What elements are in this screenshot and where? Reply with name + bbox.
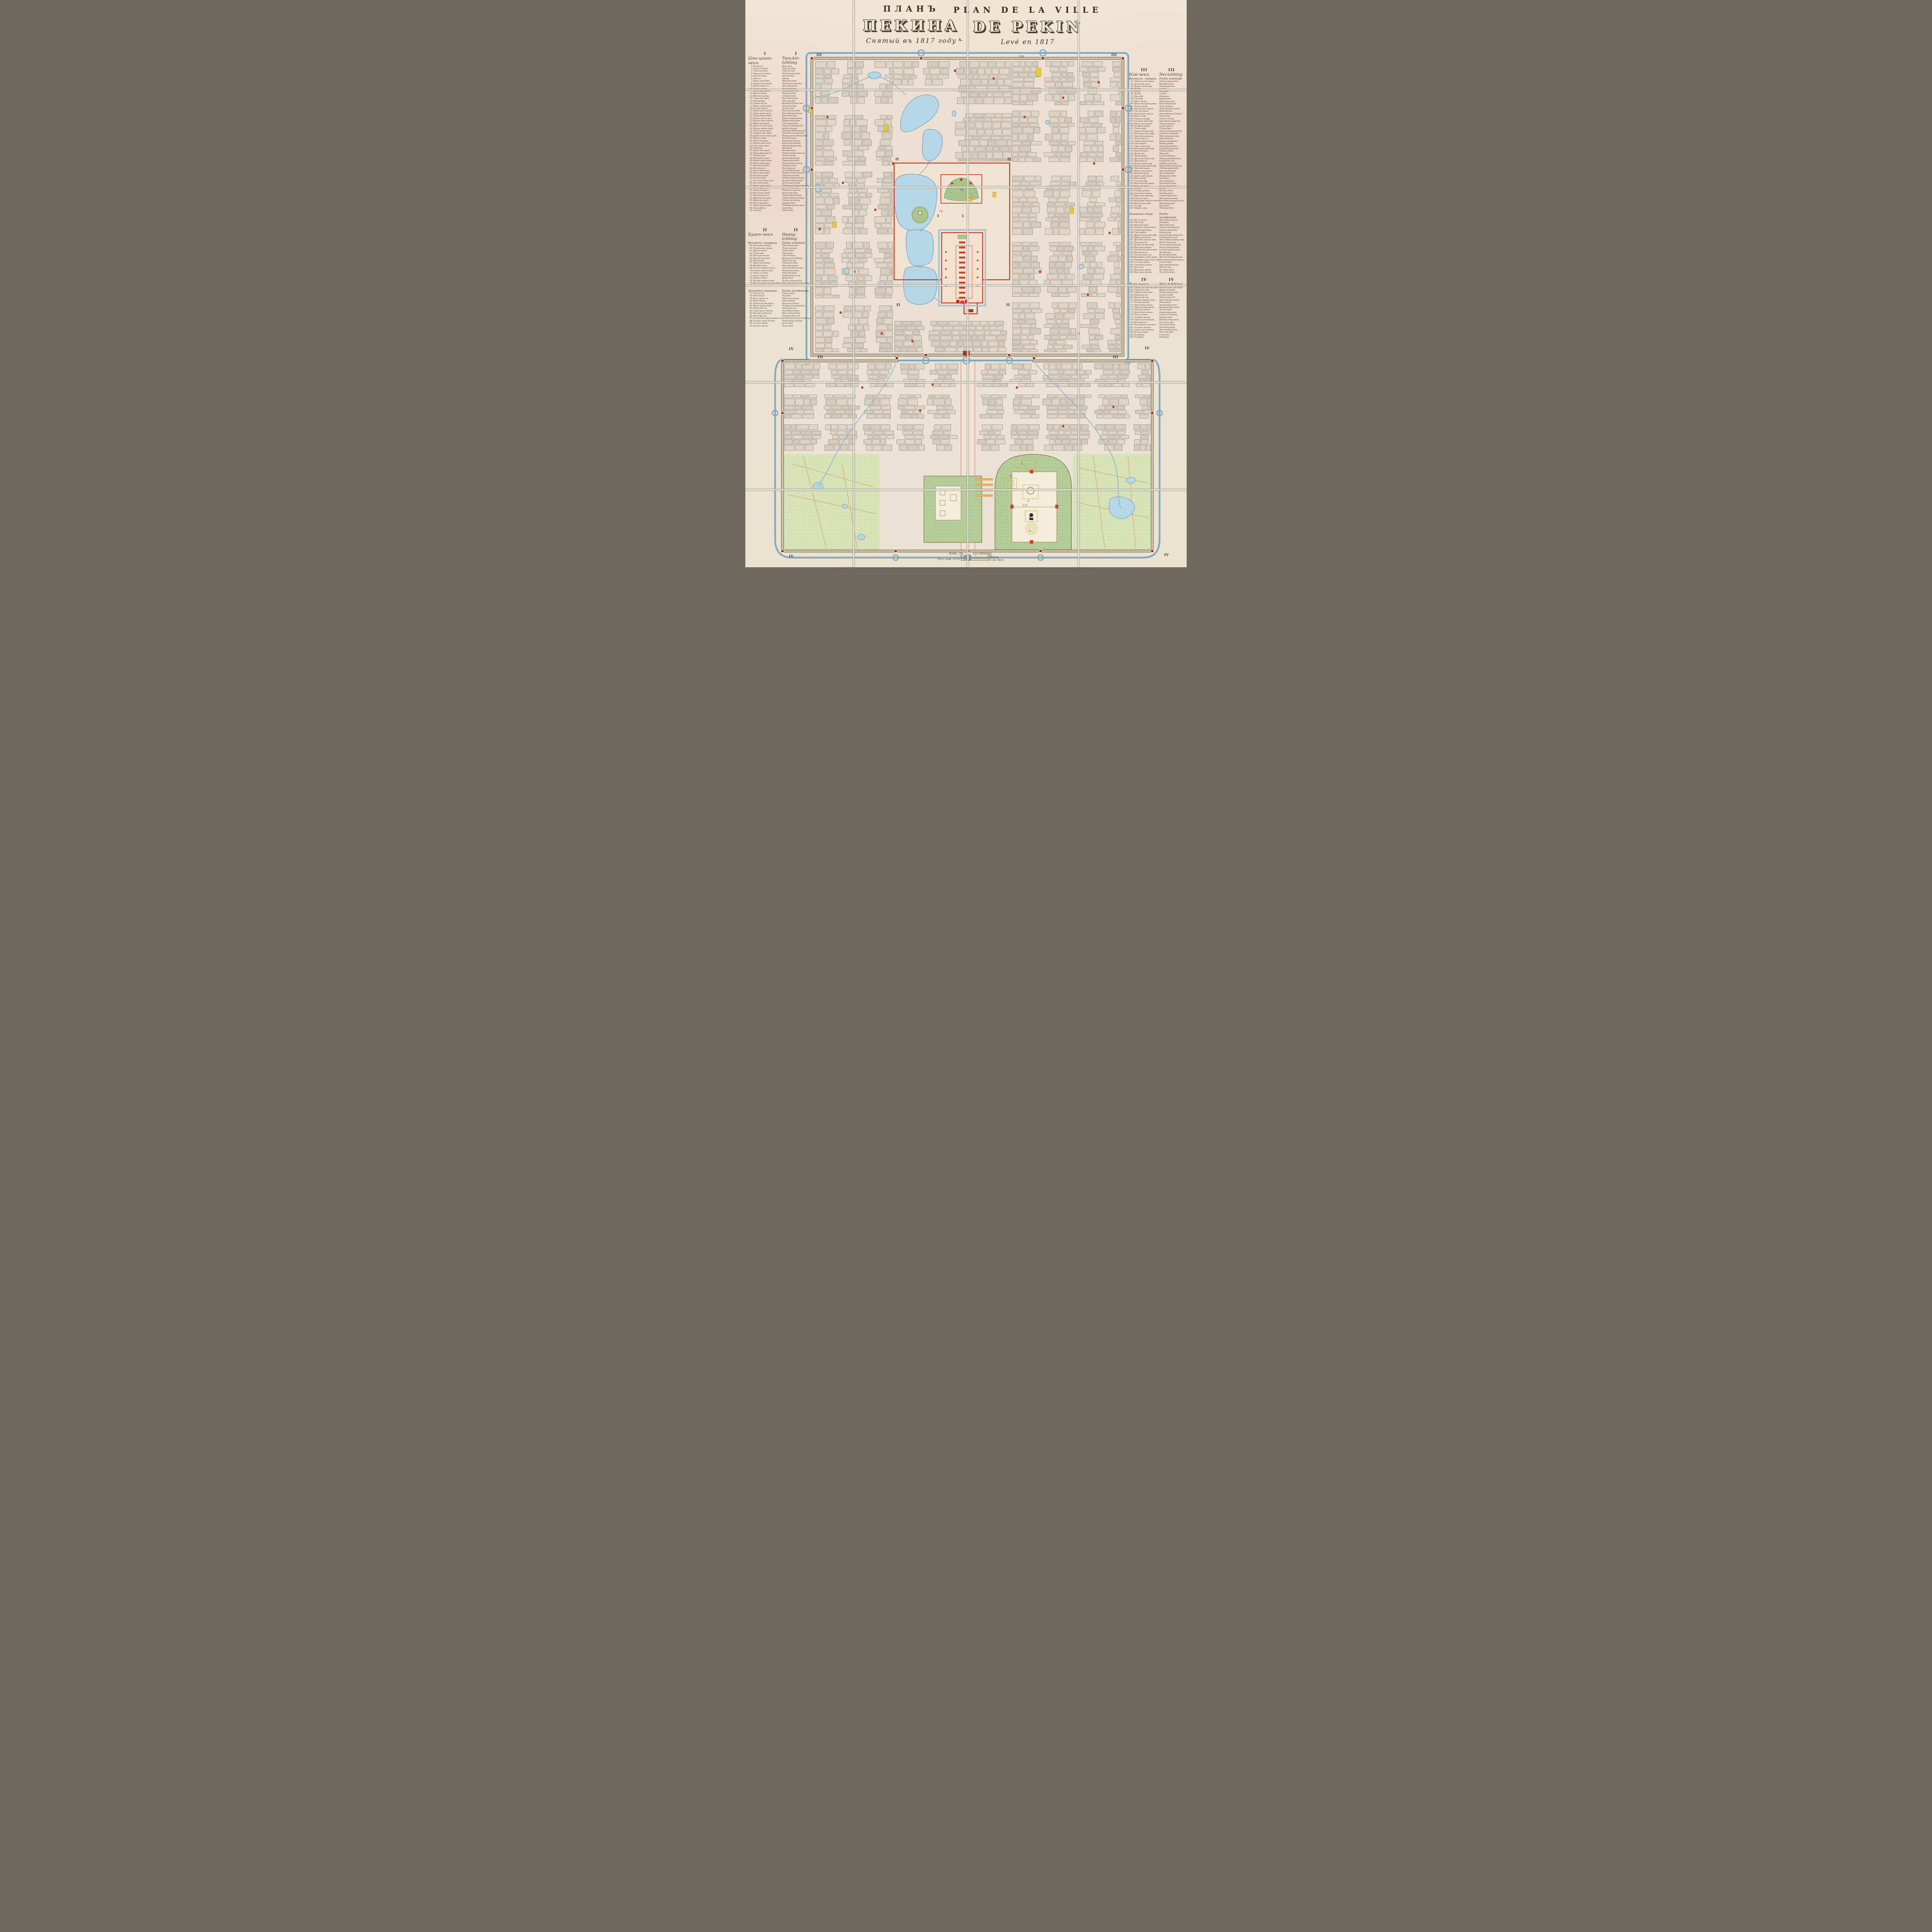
legend-entry: 76Чжао-сянь-мяоTchao-sian-miao	[748, 284, 810, 287]
legend-section-title: Вай-ченъWai-tchhing	[1129, 282, 1184, 287]
legend-subsection: Западная стор.Partie occidentale143Ду-ча…	[1129, 212, 1184, 274]
city-gate	[781, 412, 784, 415]
map-canvas	[745, 0, 1187, 567]
city-gate	[925, 354, 927, 357]
legend-entry: 59Чи-цзыTchhi-tseu	[748, 209, 810, 212]
farmland-west	[784, 454, 879, 550]
legend-section-title: Цзы-цзинь-ченъTseu-kin-tchhing	[748, 56, 810, 65]
city-gate	[1033, 357, 1036, 360]
title-fr-plan: PLAN DE LA VILLE	[953, 5, 1102, 15]
legend-entry: 185УсадьбыPotagers	[1129, 336, 1184, 338]
altar-of-agriculture	[924, 476, 982, 543]
legend-left-column: IIЦзы-цзинь-ченъTseu-kin-tchhing1Ву-мынь…	[748, 52, 810, 327]
legend-section-numeral: IIII	[748, 228, 810, 232]
city-gate	[1122, 168, 1124, 171]
legend-section-numeral: IIIIII	[1129, 68, 1184, 72]
city-gate	[920, 57, 923, 60]
scale-left-label: Росс. саж. 271¼	[938, 558, 961, 561]
city-gate	[1042, 57, 1044, 60]
city-gate	[1039, 550, 1042, 553]
title-russian: ПЛАНЪ ПЕКИНА Снятый въ 1817 году	[863, 4, 960, 45]
legend-subsection: Западная сторонаPartie occidentale77Тхай…	[748, 289, 810, 327]
legend-section-title: Западная сторонаPartie occidentale	[748, 289, 810, 293]
legend-section: IIIIIIНэй-ченъNei-tchhingВосточн. сторон…	[1129, 68, 1184, 210]
legend-section: IIЦзы-цзинь-ченъTseu-kin-tchhing1Ву-мынь…	[748, 52, 810, 212]
scale-bar: Кит. Ли Ly Chinoise. Росс. саж. 271¼ 0 1…	[938, 552, 1004, 561]
legend-entry: 90Ди-ань-мыньTi-an-men	[748, 325, 810, 327]
legend-entry: 142Чжунъ-лэуTchoung-leou	[1129, 207, 1184, 209]
legend-section-subtitle: Восточн. сторон.Partie orientale	[1129, 77, 1184, 80]
legend-section-numeral: IVIV	[1129, 278, 1184, 282]
title-ru-plan: ПЛАНЪ	[863, 4, 960, 14]
city-gate	[1151, 360, 1154, 362]
legend-section-subtitle: Восточн. сторонаPartie orientale	[748, 241, 810, 245]
city-gate	[781, 550, 784, 553]
farmland-east	[1073, 454, 1152, 550]
legend-section-title: Хуанъ-ченъHoang-tchhing	[748, 232, 810, 241]
city-gate	[781, 360, 784, 362]
city-gate	[1122, 107, 1124, 110]
title-fr-pekin: DE PEKIN	[953, 18, 1102, 35]
city-gate	[1008, 354, 1011, 357]
legend-right-column: IIIIIIНэй-ченъNei-tchhingВосточн. сторон…	[1129, 68, 1184, 339]
city-gate	[895, 550, 897, 553]
city-gate	[811, 57, 813, 60]
legend-section: IIIIХуанъ-ченъHoang-tchhingВосточн. стор…	[748, 228, 810, 287]
legend-entry: 164Цзи-шуй-тханьTsi-choui-than	[1129, 271, 1184, 274]
map-sheet: ПЛАНЪ ПЕКИНА Снятый въ 1817 году PLAN DE…	[745, 0, 1187, 567]
legend-section: IVIVВай-ченъWai-tchhing165Гуань-ань-да-ш…	[1129, 278, 1184, 339]
temple-of-heaven	[995, 454, 1071, 550]
title-french: PLAN DE LA VILLE DE PEKIN Levé en 1817	[953, 5, 1102, 46]
city-gate	[896, 357, 898, 360]
city-gate	[811, 168, 813, 171]
scale-bar-line: 0 18 36 54 180	[961, 558, 989, 560]
legend-section-title: Нэй-ченъNei-tchhing	[1129, 72, 1184, 77]
title-ru-subtitle: Снятый въ 1817 году	[863, 37, 960, 45]
city-gate	[1151, 412, 1154, 415]
legend-section-numeral: II	[748, 52, 810, 56]
city-gate	[1151, 550, 1154, 553]
city-gate	[1122, 57, 1124, 60]
legend-section-title: Западная стор.Partie occidentale	[1129, 212, 1184, 219]
title-fr-subtitle: Levé en 1817	[953, 38, 1102, 46]
forbidden-city	[939, 230, 985, 306]
title-ru-pekin: ПЕКИНА	[863, 17, 960, 34]
